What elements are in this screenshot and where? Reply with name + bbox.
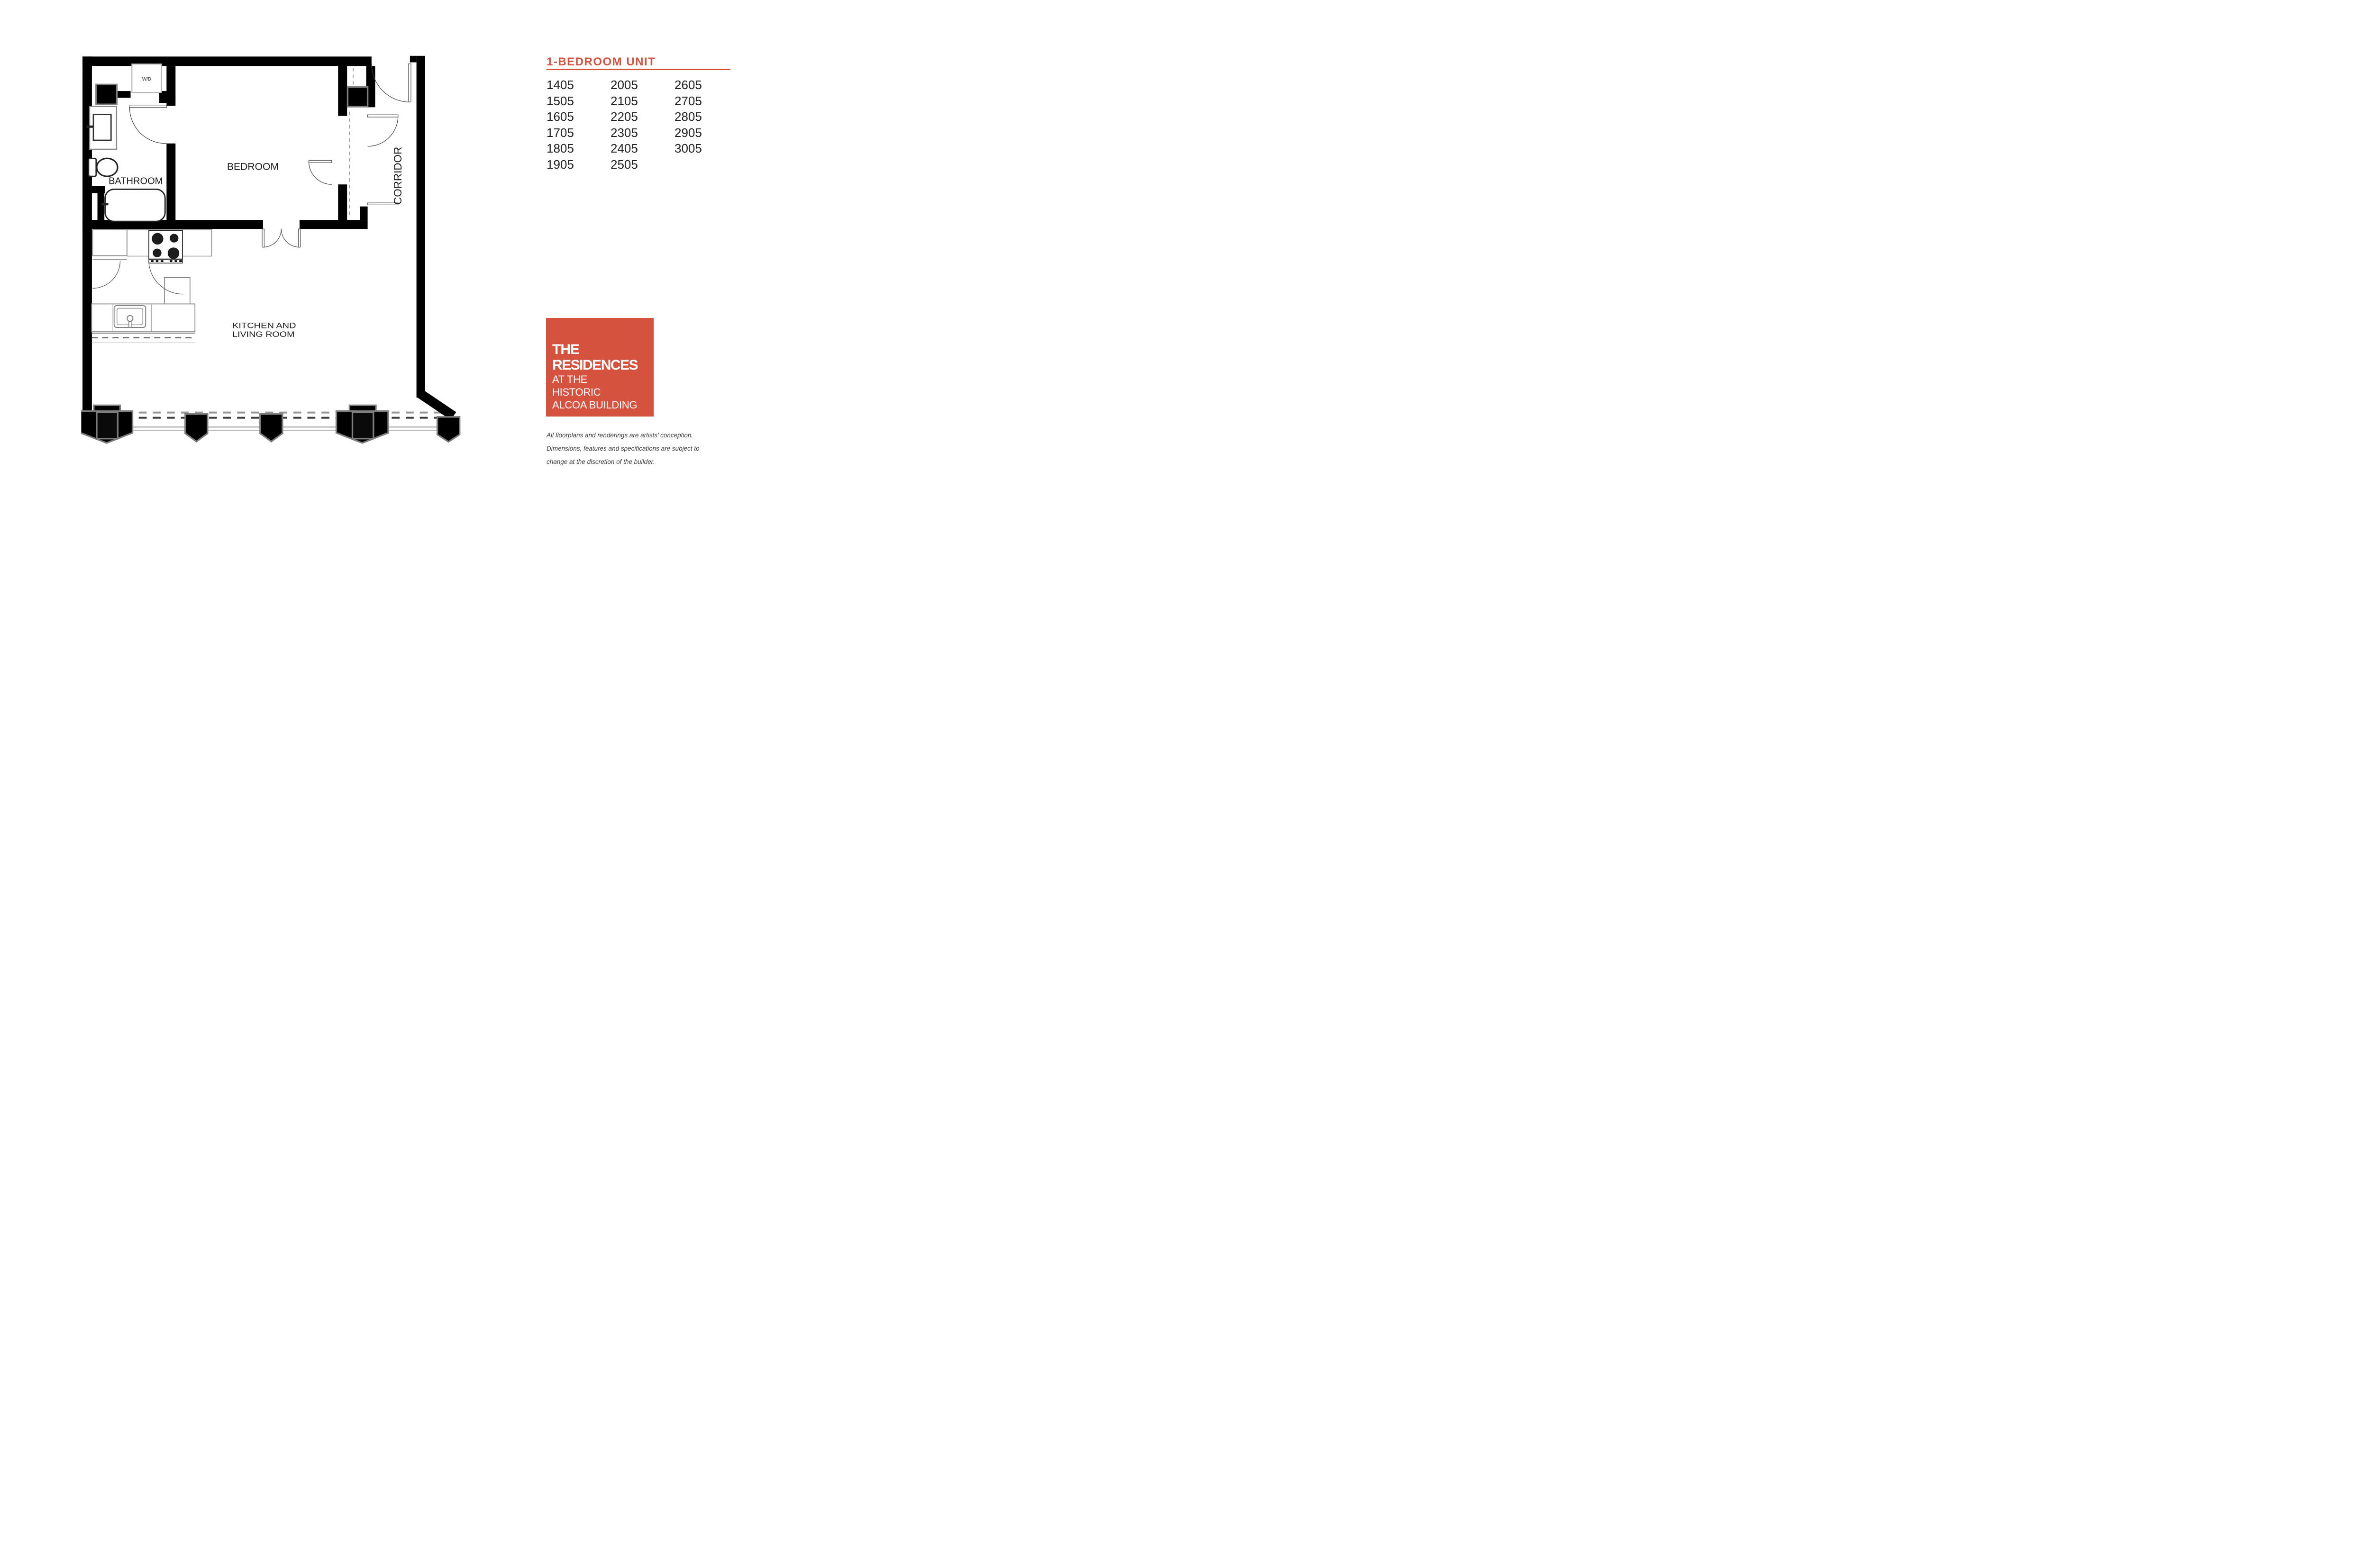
bay-column-large-inset	[97, 412, 118, 439]
double-door-arc-left	[263, 229, 282, 247]
hall-door-leaf	[309, 160, 331, 163]
wall-hall-bottom-stub	[360, 207, 368, 220]
vestibule-door-leaf	[368, 115, 398, 117]
unit-number: 3005	[675, 141, 738, 157]
burner-icon	[153, 249, 161, 257]
unit-number: 1905	[547, 157, 611, 173]
bathtub-faucet-icon	[101, 203, 109, 206]
refrigerator	[164, 277, 190, 306]
hall-door-arc	[309, 162, 331, 184]
corridor-wall-cap	[410, 56, 417, 63]
corridor-label: CORRIDOR	[392, 147, 404, 205]
unit-number: 2805	[675, 109, 738, 125]
unit-number: 1605	[547, 109, 611, 125]
unit-number: 1405	[547, 77, 611, 93]
bathroom-label: BATHROOM	[109, 176, 163, 187]
column-entry-closet	[347, 87, 367, 107]
toilet-bowl	[97, 158, 118, 176]
bathroom-door-leaf	[129, 105, 167, 108]
vanity-faucet-icon	[87, 126, 93, 128]
wall-hall-bottom	[300, 220, 368, 229]
bay-column-small	[438, 417, 460, 442]
vanity-sink	[93, 115, 111, 140]
range-front	[149, 259, 182, 263]
unit-number: 2405	[611, 141, 675, 157]
sink-faucet-icon	[127, 316, 133, 321]
entry-door-leaf	[409, 64, 411, 102]
burner-icon	[152, 233, 163, 245]
column-bathroom	[96, 84, 117, 104]
unit-number: 2205	[611, 109, 675, 125]
unit-number: 1505	[547, 93, 611, 109]
unit-number: 2605	[675, 77, 738, 93]
double-door-arc-right	[281, 229, 300, 247]
kitchen-cabinet	[92, 230, 127, 256]
bay-column-small	[185, 414, 208, 442]
corridor-wall-right	[417, 56, 425, 398]
disclaimer-line: Dimensions, features and specifications …	[547, 442, 736, 455]
unit-number: 2005	[611, 77, 675, 93]
wall-bedroom-right-upper	[338, 66, 347, 116]
brand-logo-box: THE RESIDENCES AT THE HISTORIC ALCOA BUI…	[546, 318, 654, 417]
sink-faucet-stem	[129, 322, 131, 327]
unit-number-column: 26052705280529053005	[675, 77, 738, 173]
title-underline	[547, 69, 730, 70]
logo-line-alcoa-building: ALCOA BUILDING	[552, 399, 650, 411]
logo-line-at-the: AT THE	[552, 373, 650, 386]
kitchen-fixtures	[91, 230, 211, 343]
bathroom-door-arc	[129, 108, 166, 144]
unit-number: 2505	[611, 157, 675, 173]
bay-columns	[81, 405, 460, 443]
entry-door-arc	[372, 64, 410, 102]
unit-number: 2905	[675, 125, 738, 141]
unit-number-column: 140515051605170518051905	[547, 77, 611, 173]
disclaimer-text: All floorplans and renderings are artist…	[547, 429, 736, 469]
walls	[82, 56, 453, 417]
logo-line-the: THE	[552, 342, 650, 357]
kitchen-label-line1: KITCHEN AND	[232, 322, 296, 330]
bedroom-label: BEDROOM	[227, 161, 279, 172]
logo-line-historic: HISTORIC	[552, 386, 650, 399]
wall-top	[82, 56, 372, 66]
page-title: 1-BEDROOM UNIT	[547, 55, 746, 69]
double-door-leaf-left	[262, 229, 264, 247]
unit-number: 2705	[675, 93, 738, 109]
unit-number: 1805	[547, 141, 611, 157]
vestibule-door-arc	[368, 116, 398, 146]
wall-bedroom-right-lower	[338, 184, 347, 229]
double-door-leaf-right	[298, 229, 300, 247]
wall-bedroom-bottom	[82, 220, 263, 229]
bay-column-large-inset	[353, 412, 374, 439]
wall-bathroom-right-upper	[166, 66, 175, 106]
wall-stub-bathroom-entry	[117, 91, 130, 98]
unit-number-column: 200521052205230524052505	[611, 77, 675, 173]
unit-numbers-grid: 1405150516051705180519052005210522052305…	[547, 77, 746, 173]
bathtub	[105, 189, 165, 221]
washer-dryer-label: W/D	[142, 77, 151, 82]
kitchen-label-line2: LIVING ROOM	[232, 330, 294, 339]
bay-column-small	[260, 414, 283, 442]
unit-number: 1705	[547, 125, 611, 141]
toilet-tank	[89, 158, 96, 176]
floorplan-drawing: W/D	[81, 55, 465, 451]
wall-bathroom-right-lower	[166, 144, 175, 220]
unit-number: 2105	[611, 93, 675, 109]
burner-icon	[168, 247, 179, 259]
logo-line-residences: RESIDENCES	[552, 357, 650, 373]
burner-icon	[170, 234, 178, 242]
cabinet-door-arc	[92, 261, 120, 288]
disclaimer-line: All floorplans and renderings are artist…	[547, 429, 736, 442]
disclaimer-line: change at the discretion of the builder.	[547, 455, 736, 469]
unit-number: 2305	[611, 125, 675, 141]
